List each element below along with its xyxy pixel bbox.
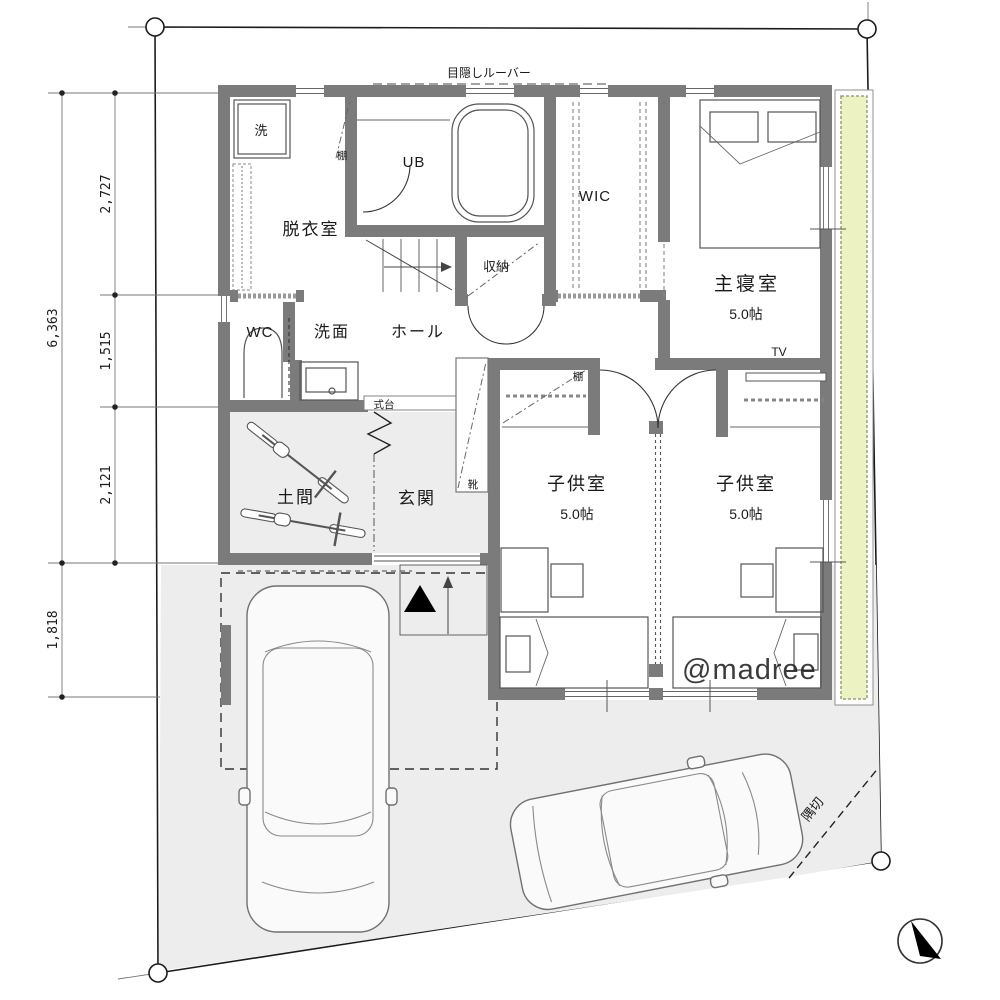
- dim-seg-top: 2,727: [99, 174, 114, 213]
- window-north-master: [686, 85, 714, 97]
- label-entrance: 玄関: [398, 489, 436, 508]
- entrance-slider: [372, 553, 480, 565]
- watermark: @madree: [682, 654, 817, 686]
- label-lavatory: 洗面: [314, 323, 350, 341]
- label-shelf-dressing: 棚: [337, 149, 348, 162]
- floor-plan-canvas: 6,363 2,727 1,515 2,121 1,818 隅切 目隠しルーバー…: [0, 0, 1000, 1000]
- label-step: 式台: [374, 398, 395, 411]
- label-shelf-child: 棚: [573, 370, 584, 383]
- window-north-dressing: [296, 85, 324, 97]
- shoe-cabinet: [456, 358, 488, 492]
- window-north-bath: [466, 85, 514, 97]
- label-master-bedroom: 主寝室: [714, 273, 780, 295]
- north-arrow-icon: [898, 919, 942, 963]
- window-north-wic: [580, 85, 608, 97]
- deck-strip: [835, 90, 873, 705]
- label-hall: ホール: [391, 324, 445, 341]
- label-shoes: 靴: [468, 478, 479, 491]
- label-storage: 収納: [483, 259, 509, 274]
- label-unit-bath: UB: [403, 154, 426, 171]
- dim-front-setback: 1,818: [46, 610, 61, 649]
- label-child1-size: 5.0帖: [560, 506, 593, 522]
- car-front-parking: [239, 586, 397, 932]
- deck-fill: [841, 96, 867, 699]
- label-wic: WIC: [579, 188, 611, 205]
- label-tv: TV: [771, 345, 786, 359]
- label-child1: 子供室: [547, 474, 607, 494]
- dim-seg-mid: 1,515: [99, 331, 114, 370]
- label-master-size: 5.0帖: [729, 306, 762, 322]
- dim-seg-bottom: 2,121: [99, 465, 114, 504]
- louver-note: 目隠しルーバー: [373, 66, 610, 84]
- floor-plan-svg: 6,363 2,727 1,515 2,121 1,818 隅切 目隠しルーバー…: [0, 0, 1000, 1000]
- label-child2: 子供室: [716, 474, 776, 494]
- label-doma: 土間: [277, 488, 315, 507]
- label-child2-size: 5.0帖: [729, 506, 762, 522]
- louver-label: 目隠しルーバー: [447, 66, 531, 80]
- label-wc: WC: [247, 324, 274, 341]
- window-west-wc: [218, 296, 230, 322]
- tv-counter: [746, 373, 826, 381]
- label-dressing-room: 脱衣室: [283, 220, 340, 239]
- dim-total: 6,363: [46, 308, 61, 347]
- label-washer: 洗: [254, 123, 267, 138]
